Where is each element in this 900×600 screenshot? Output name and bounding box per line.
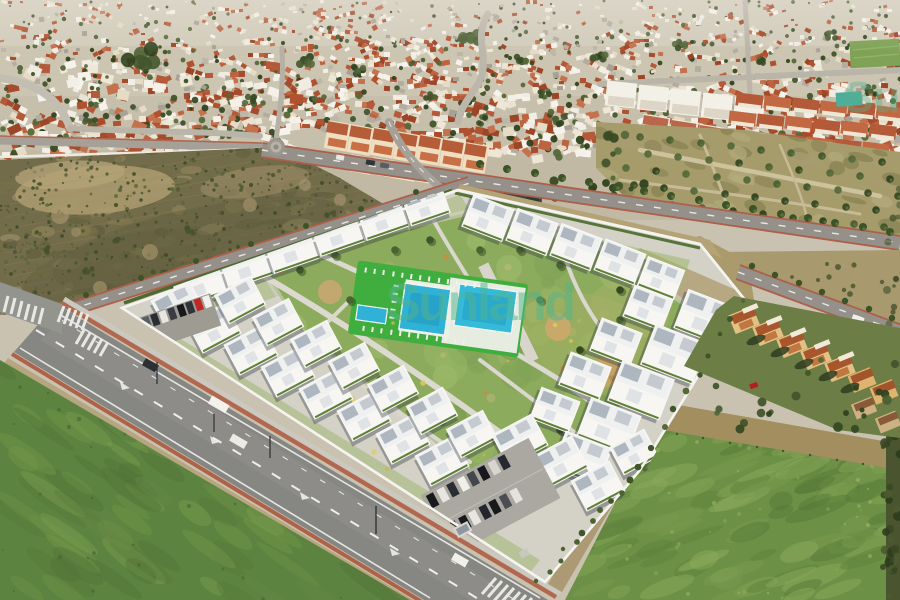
svg-text:Sunland: Sunland bbox=[386, 274, 574, 332]
svg-text:Sun: Sun bbox=[844, 73, 900, 122]
